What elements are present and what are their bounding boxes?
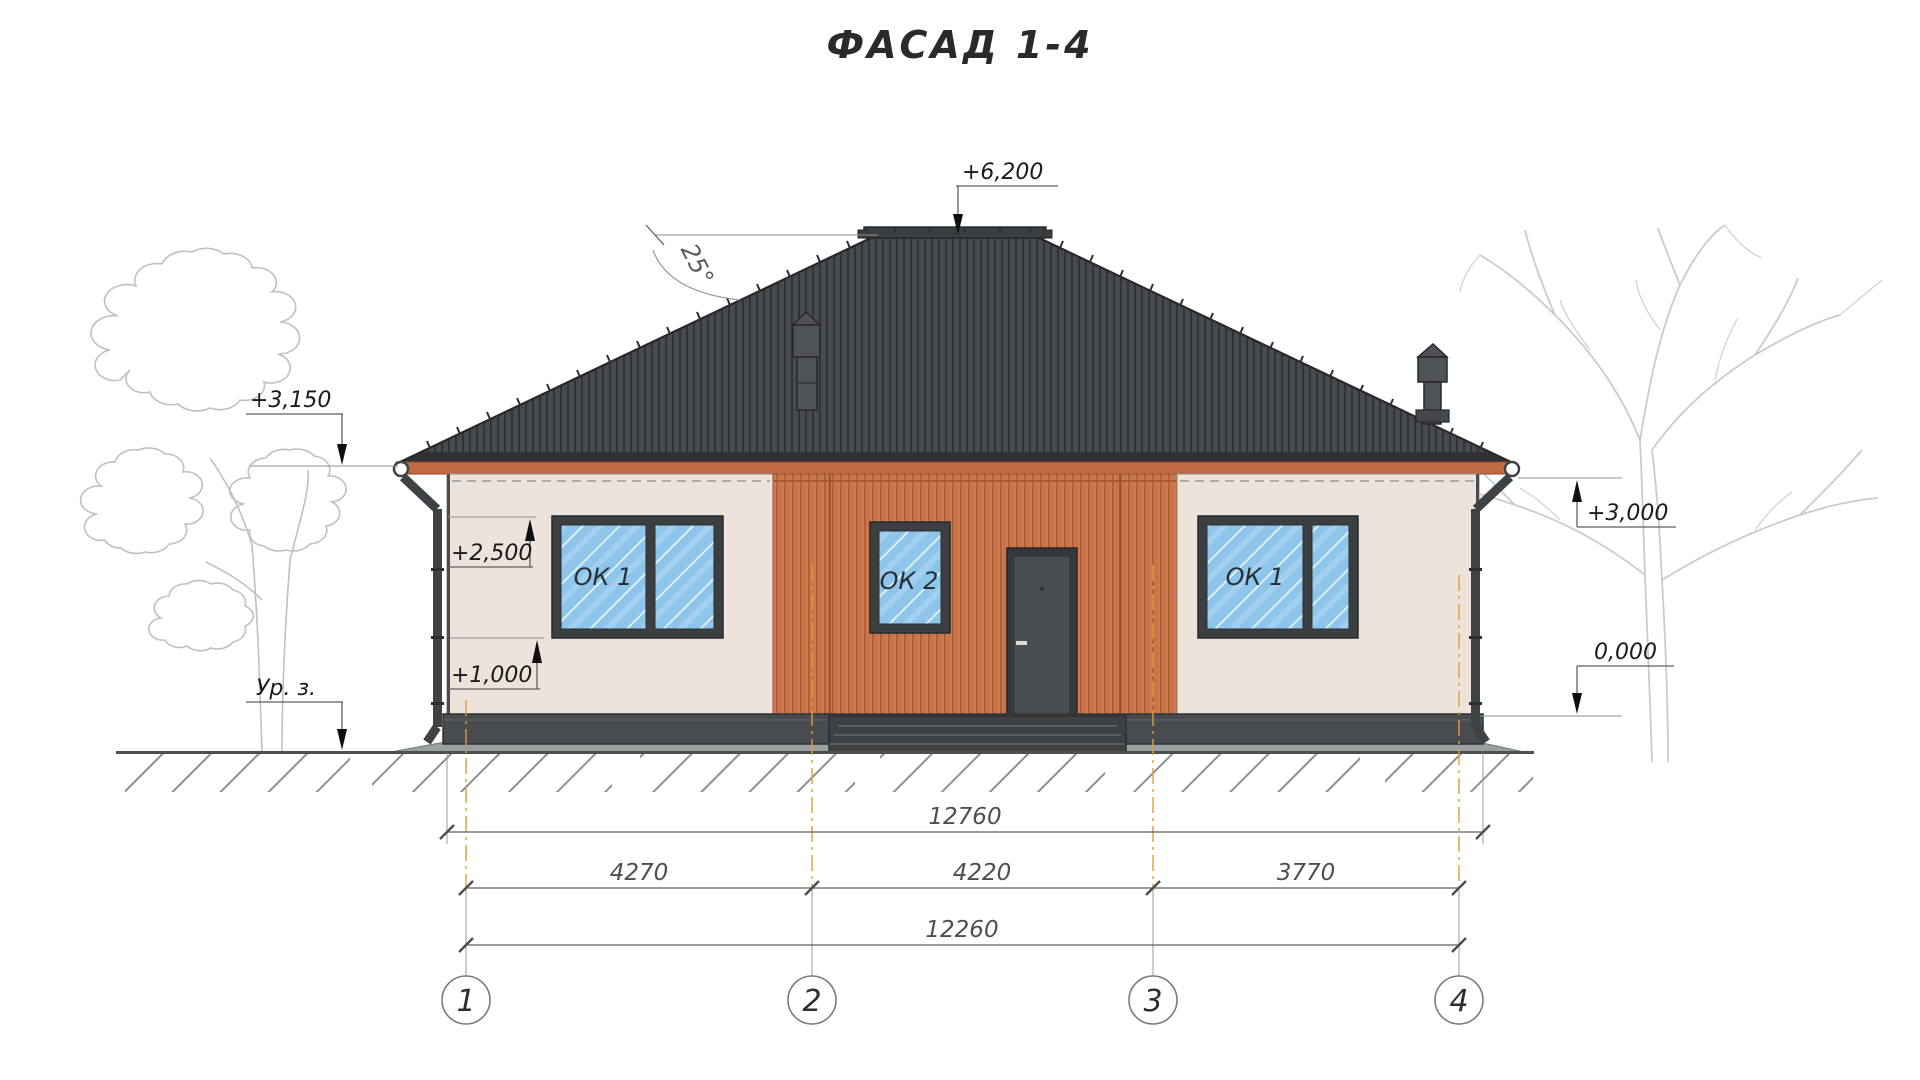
roof: [398, 227, 1513, 463]
gutter-end-right: [1505, 462, 1519, 476]
elevation-ridge: +6,200: [953, 160, 1058, 235]
door-leaf: [1014, 556, 1070, 716]
downspout-bracket: [1469, 568, 1482, 571]
roof-drip-edge: [398, 452, 1513, 463]
ground-level-label: Ур. з.: [256, 676, 316, 701]
chimney-base: [1416, 410, 1449, 422]
axis-number-2: 2: [802, 984, 821, 1019]
door-handle: [1016, 641, 1027, 645]
chimney-cap-top: [1418, 344, 1447, 357]
dim-span-3-4-label: 3770: [1277, 860, 1336, 886]
steps-block: [829, 716, 1126, 752]
elevation-right-eave-label: +3,000: [1587, 501, 1668, 526]
left-tree-canopy-2: [81, 448, 204, 553]
dim-overall-top: 12760: [440, 804, 1490, 839]
dim-span-1-2-label: 4270: [610, 860, 669, 886]
elevation-ridge-label: +6,200: [962, 160, 1043, 185]
downspout-bracket: [431, 702, 444, 705]
ridge-cap-end-left: [858, 230, 867, 238]
entrance-steps: [829, 716, 1126, 752]
dim-overall-top-label: 12760: [928, 804, 1001, 830]
elevation-window-top-label: +2,500: [451, 541, 532, 566]
window-glass-side: [1312, 525, 1349, 629]
elevation-left-eave-label: +3,150: [250, 388, 331, 413]
downspout-bracket: [1469, 636, 1482, 639]
right-tree-twigs: [1460, 225, 1882, 530]
left-tree-canopy: [91, 248, 300, 411]
axis-number-1: 1: [456, 984, 475, 1019]
roof-angle-label: 25°: [675, 239, 719, 290]
window-ok2-center: ОК 2: [870, 522, 950, 633]
axis-number-4: 4: [1449, 984, 1468, 1019]
drawing-title: ФАСАД 1-4: [826, 23, 1093, 67]
left-tree-canopy-3: [230, 449, 346, 551]
elevation-floor: 0,000: [1480, 640, 1674, 716]
door-peephole: [1040, 587, 1044, 591]
facade-drawing: ОК 1 ОК 2 ОК 1: [0, 0, 1920, 1080]
left-tree-trunk: [206, 458, 308, 752]
fascia-band: [396, 462, 1515, 474]
axis-bubbles: 1 2 3 4: [442, 976, 1483, 1024]
elevation-right-eave: +3,000: [1518, 478, 1676, 527]
roof-vent-cap: [793, 325, 820, 357]
right-tree-trunk: [1640, 440, 1668, 762]
facade-svg: ОК 1 ОК 2 ОК 1: [0, 0, 1920, 1080]
axis-number-3: 3: [1143, 984, 1162, 1019]
dim-overall-axes: 12260: [459, 917, 1466, 952]
elevation-window-sill-label: +1,000: [451, 663, 532, 688]
downspout-bracket: [431, 636, 444, 639]
dim-spans: 4270 4220 3770: [459, 860, 1466, 895]
chimney: [1416, 344, 1449, 424]
roof-surface: [398, 237, 1513, 463]
wall-center-siding: [773, 474, 1177, 716]
window-ok1-right: ОК 1: [1198, 516, 1358, 638]
downspout-left: [394, 462, 444, 742]
gutter-end-left: [394, 462, 408, 476]
window-ok1-left: ОК 1: [552, 516, 723, 638]
entry-door: [1007, 548, 1077, 716]
ridge-cap-end-right: [1043, 230, 1052, 238]
window-glass-side: [655, 525, 714, 629]
ground-hatch: [125, 754, 1533, 792]
chimney-cap: [1418, 357, 1447, 382]
left-tree-canopy-4: [149, 580, 253, 650]
downspout-bracket: [431, 568, 444, 571]
elevation-floor-label: 0,000: [1594, 640, 1657, 665]
downspout-bracket: [1469, 702, 1482, 705]
window-label-right: ОК 1: [1226, 563, 1285, 591]
window-label-left: ОК 1: [574, 563, 633, 591]
dim-span-2-3-label: 4220: [953, 860, 1012, 886]
roof-vent: [793, 312, 820, 410]
dim-overall-axes-label: 12260: [925, 917, 998, 943]
window-label-center: ОК 2: [880, 567, 939, 595]
ridge-cap: [864, 227, 1046, 238]
right-tree: [1455, 225, 1882, 762]
